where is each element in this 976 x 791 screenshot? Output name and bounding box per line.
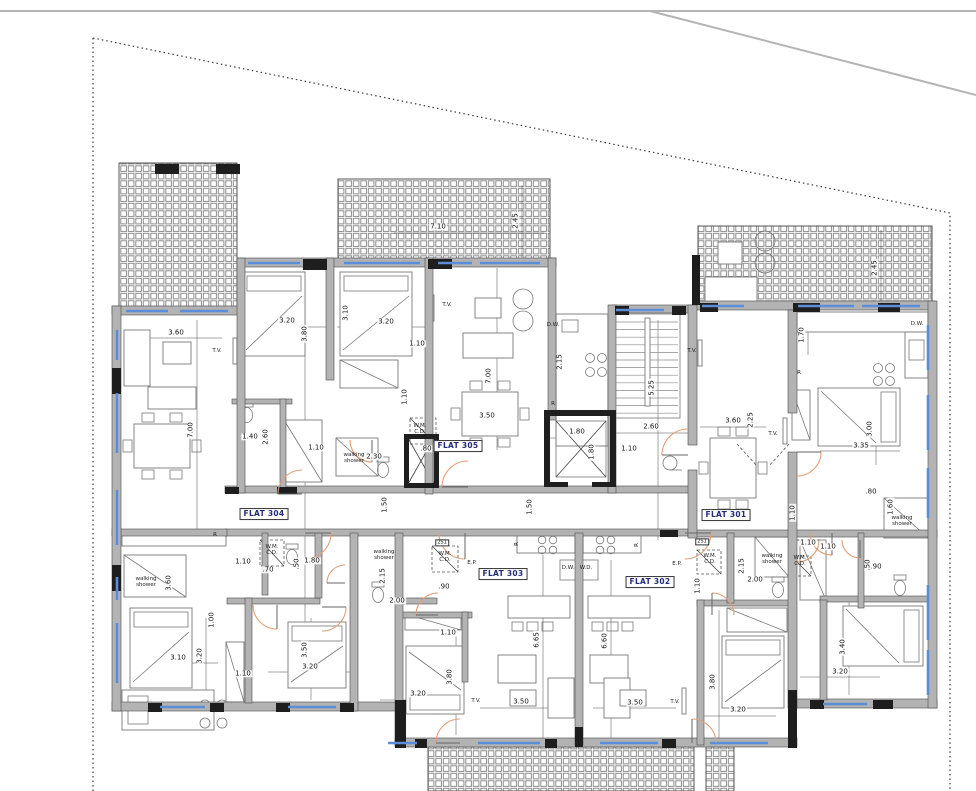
dimension-label: 3.20 [831,668,849,675]
flat-label-304: FLAT 304 [240,508,289,520]
dimension-label: 2.25 [747,411,754,429]
room-note: W.D. [580,566,593,572]
dimension-label: 1.70 [798,326,805,344]
dimension-label: 1.10 [694,577,701,595]
dimension-label: 3.20 [377,318,395,325]
room-note: walking shower [373,550,394,562]
dimension-label: 1.00 [208,611,215,629]
dimension-label: 3.60 [165,574,172,592]
dimension-label: 3.80 [446,668,453,686]
dimension-label: 1.10 [234,670,252,677]
dimension-label: 3.50 [301,641,308,659]
dimension-label: 3.50 [512,698,530,705]
dimension-label: 3.40 [839,638,846,656]
dimension-label: .70 [261,566,274,573]
room-note: W.M. C.D. [413,424,426,436]
dimension-label: .90 [437,583,450,590]
dimension-label: .80 [419,445,432,452]
dimension-label: 3.10 [169,654,187,661]
room-note: D.W. [911,322,924,328]
room-note: T.V. [687,349,696,355]
room-note: walking shower [135,577,156,589]
dimension-label: 3.60 [724,417,742,424]
dimension-label: 3.20 [301,663,319,670]
room-note: T.V. [442,303,451,309]
flat-label-305: FLAT 305 [434,440,483,452]
room-note: E.P. [672,562,681,568]
dimension-label: .80 [864,488,877,495]
floor-plan-page: FLAT 304FLAT 305FLAT 301FLAT 303FLAT 302… [0,0,976,791]
room-note: walking shower [761,554,782,566]
dimension-label: .50 [293,557,300,570]
room-note: E.P. [467,561,476,567]
dimension-label: 1.50 [526,498,533,516]
dimension-label: 3.10 [342,304,349,322]
room-note: R [797,371,801,377]
dimension-label: 3.60 [167,329,185,336]
dimension-label: 1.10 [620,445,638,452]
dimension-label: 2.15 [556,353,563,371]
dimension-label: 1.50 [381,496,388,514]
dimension-label: 1.80 [568,428,586,435]
dimension-label: 1.80 [303,557,321,564]
room-note: T.V. [471,699,480,705]
room-note: R [515,542,521,546]
dimension-label: .50 [864,558,871,571]
dimension-label: 3.80 [709,673,716,691]
dimension-label: 7.10 [429,223,447,230]
dimension-label: 2.45 [512,212,519,230]
flat-label-302: FLAT 302 [626,576,675,588]
dimension-label: 7.00 [187,421,194,439]
dimension-label: 3.35 [852,442,870,449]
dimension-label: 3.50 [626,699,644,706]
room-note: W.M. C.D. [793,556,806,568]
flat-label-303: FLAT 303 [479,568,528,580]
room-note: R [635,543,641,547]
dimension-label: 1.10 [789,504,796,522]
room-note: W.M. C.D. [438,552,451,564]
dimension-label: 2.15 [379,567,386,585]
room-note: R [551,402,555,408]
dimension-label: 2.00 [746,576,764,583]
dimension-label: 1.40 [241,433,259,440]
dimension-label: 2.45 [871,259,878,277]
dimension-label: 3.20 [409,690,427,697]
dimension-label: 1.60 [887,498,894,516]
room-note: R [213,533,217,539]
dimension-label: 5.25 [648,379,655,397]
room-note: T.V. [768,432,777,438]
dimension-label: 3.20 [278,317,296,324]
dimension-label: 2.15 [738,557,745,575]
room-note: T.V. [212,349,221,355]
dimension-label: 2.30 [365,453,383,460]
dimension-label: 1.10 [234,558,252,565]
room-note: W.M. C.D. [265,545,278,557]
dimension-label: 6.60 [601,632,608,650]
room-note: W.M. C.D. [703,554,716,566]
dimension-label: 2.60 [262,428,269,446]
dimension-label: 1.10 [401,388,408,406]
room-note: T.V. [670,700,679,706]
dimension-label: 1.10 [799,539,817,546]
fixture-tag: 2S1 [695,538,709,545]
dimension-label: 3.50 [478,412,496,419]
flat-label-301: FLAT 301 [702,509,751,521]
dimension-label: 3.80 [301,325,308,343]
dimension-label: 7.00 [485,367,492,385]
room-note: walking shower [343,453,364,465]
dimension-label: 1.80 [588,443,595,461]
dimension-label: 1.10 [408,340,426,347]
dimension-label: 6.65 [533,631,540,649]
dimension-label: 2.00 [388,597,406,604]
dimension-label: 1.10 [819,543,837,550]
dimension-label: 3.20 [196,647,203,665]
dimension-label: 1.10 [307,444,325,451]
dimension-label: 1.10 [439,629,457,636]
room-note: walking shower [891,516,912,528]
plan-labels-layer: FLAT 304FLAT 305FLAT 301FLAT 303FLAT 302… [0,0,976,791]
dimension-label: 2.60 [642,423,660,430]
fixture-tag: 2S1 [435,539,449,546]
room-note: D.W. [547,323,560,329]
dimension-label: 3.20 [729,706,747,713]
room-note: D.W. [562,566,575,572]
dimension-label: 3.00 [866,420,873,438]
